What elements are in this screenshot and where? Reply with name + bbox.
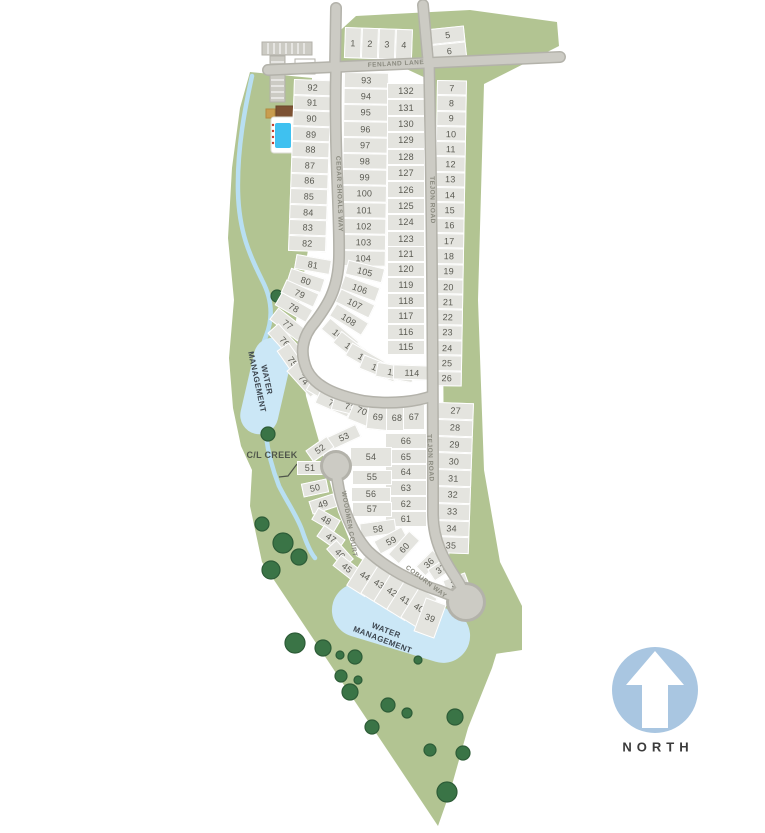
water-management-label-lower: WATER MANAGEMENT bbox=[351, 615, 417, 657]
street-label-tejon-lower: TEJON ROAD bbox=[425, 434, 434, 482]
street-label-tejon-upper: TEJON ROAD bbox=[428, 176, 436, 224]
street-label-woodmen: WOODMEN COURT bbox=[340, 490, 358, 557]
labels-layer: FENLAND LANE CEDAR SHOALS WAY TEJON ROAD… bbox=[0, 0, 765, 833]
street-label-cedar-shoals: CEDAR SHOALS WAY bbox=[334, 156, 344, 232]
street-label-coburn: COBURN WAY bbox=[404, 564, 448, 599]
site-plan-map: 1234569291908988878685848382939495969798… bbox=[0, 0, 765, 833]
creek-label: C/L CREEK bbox=[246, 450, 297, 460]
water-management-label-upper: WATER MANAGEMENT bbox=[244, 348, 277, 413]
street-label-fenland: FENLAND LANE bbox=[368, 59, 425, 69]
north-label: NORTH bbox=[622, 740, 693, 755]
